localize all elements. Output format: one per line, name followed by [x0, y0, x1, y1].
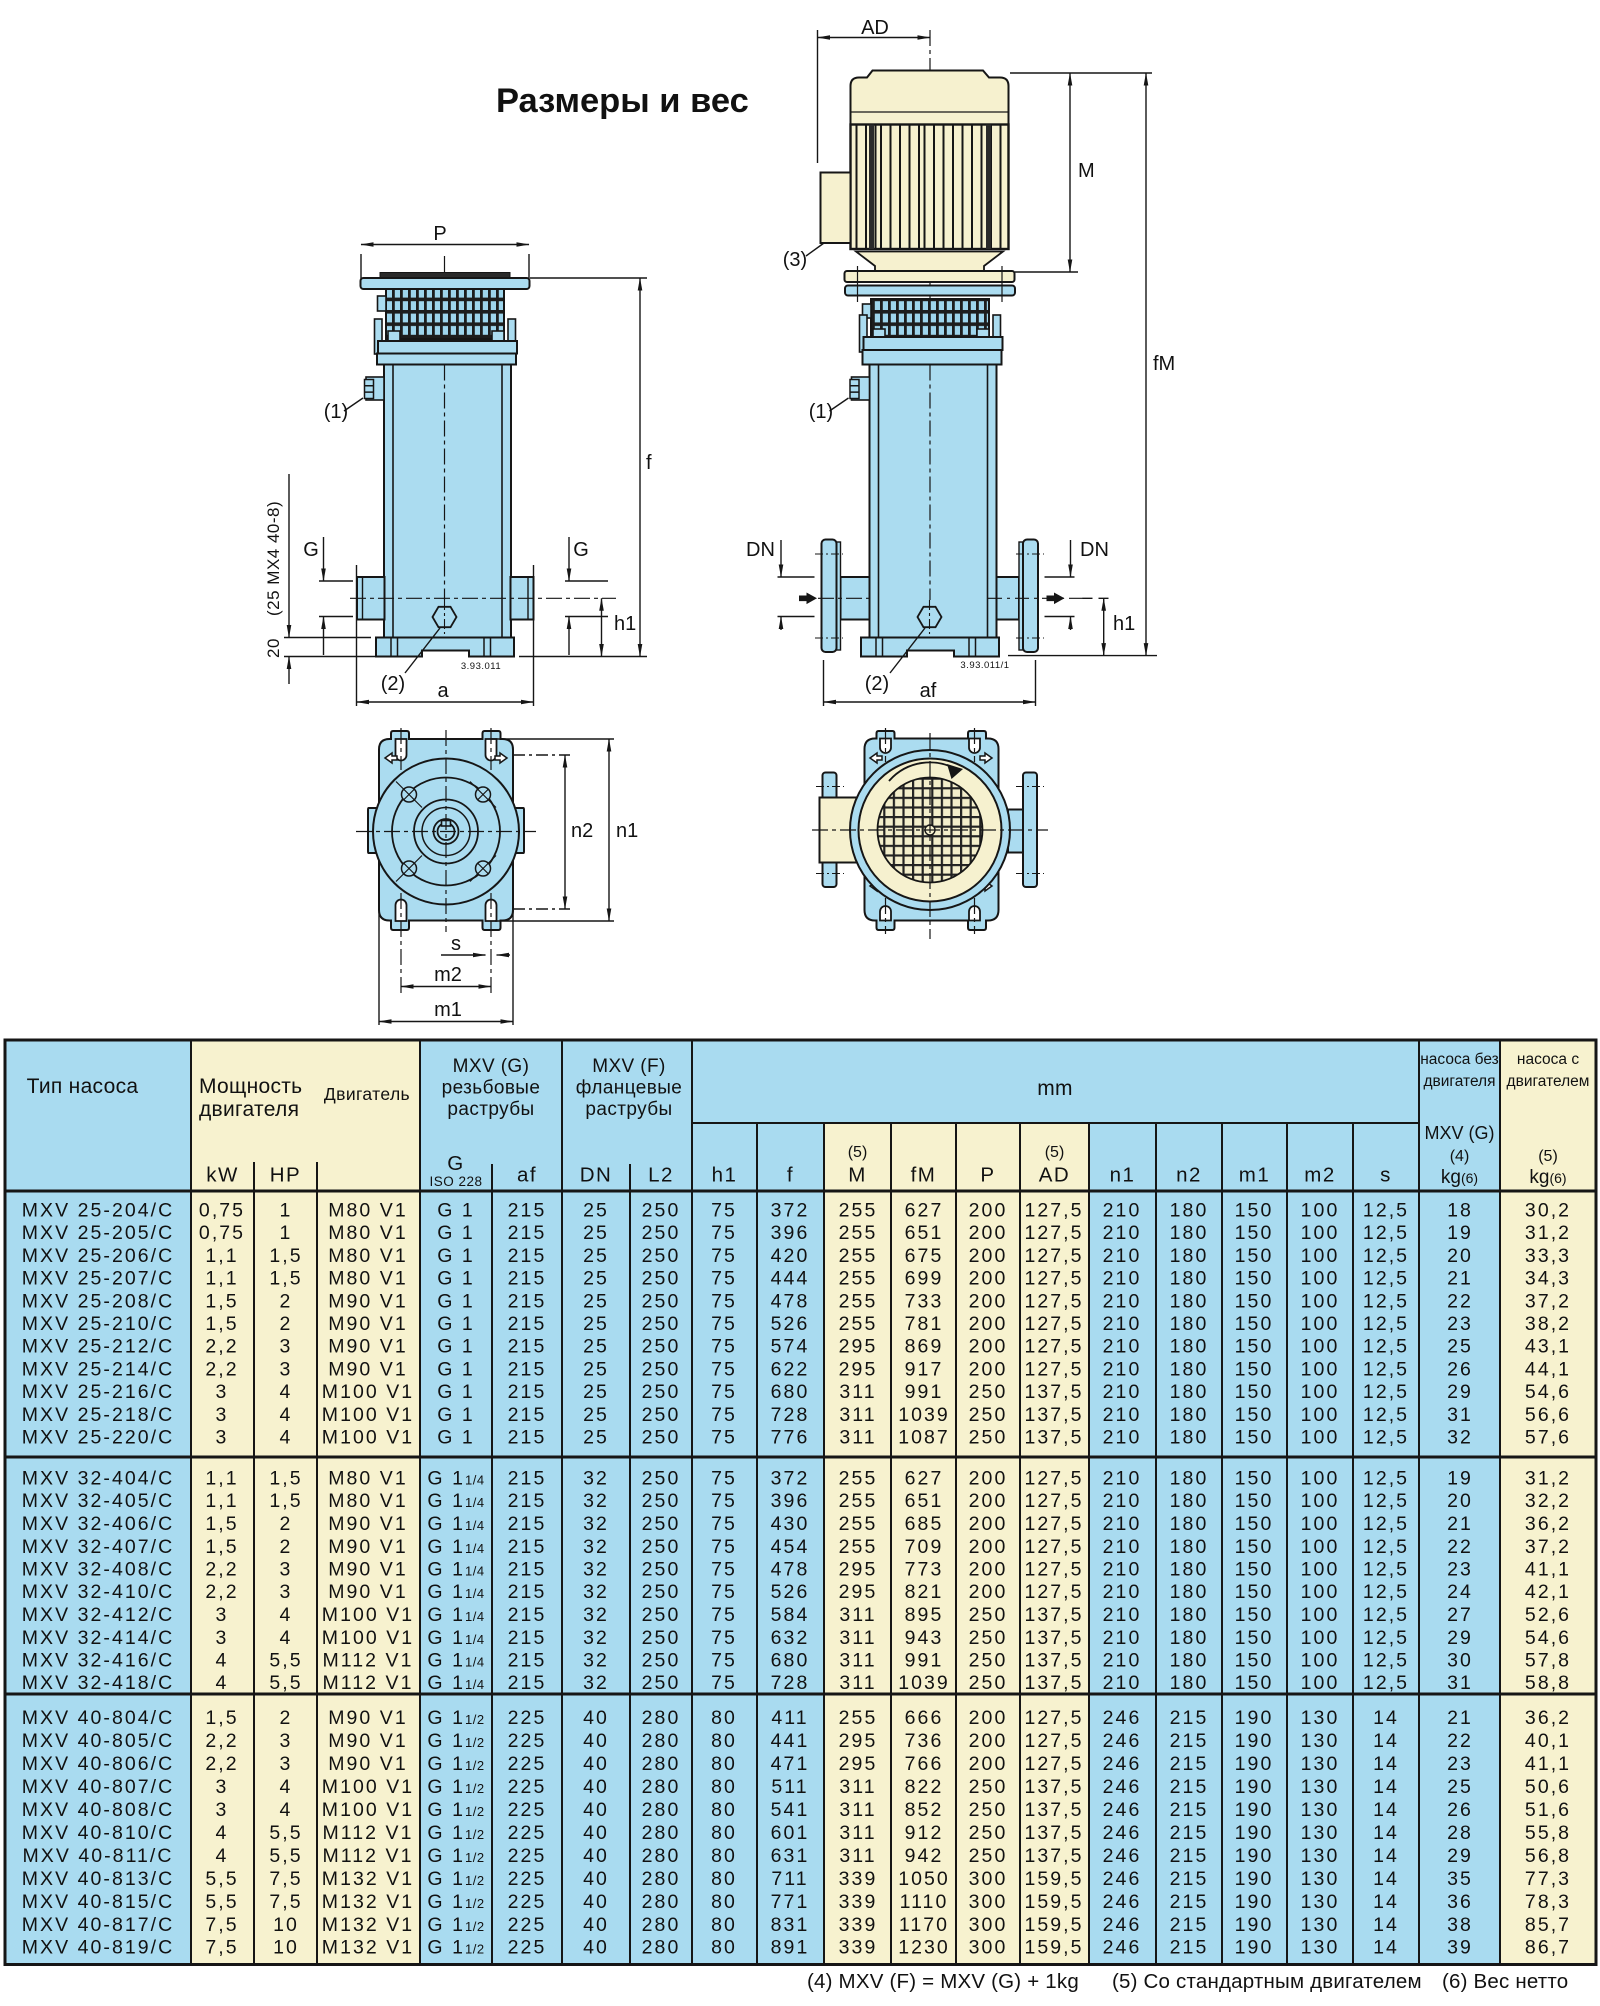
- svg-text:m1: m1: [1239, 1164, 1270, 1187]
- svg-text:фланцевые: фланцевые: [576, 1078, 683, 1099]
- svg-text:mm: mm: [1037, 1077, 1073, 1100]
- svg-text:насоса с: насоса с: [1517, 1051, 1579, 1068]
- svg-text:f: f: [646, 452, 652, 474]
- svg-text:раструбы: раструбы: [447, 1099, 534, 1120]
- svg-text:n2: n2: [571, 820, 593, 842]
- svg-text:(6) Вес нетто: (6) Вес нетто: [1442, 1970, 1568, 1993]
- svg-text:P: P: [980, 1164, 995, 1187]
- svg-text:20: 20: [264, 638, 283, 658]
- svg-text:Тип насоса: Тип насоса: [27, 1075, 139, 1098]
- svg-text:3.93.011: 3.93.011: [461, 661, 501, 672]
- svg-text:(2): (2): [381, 673, 405, 695]
- svg-text:(5): (5): [848, 1144, 868, 1161]
- svg-text:m2: m2: [434, 964, 462, 986]
- svg-text:m2: m2: [1304, 1164, 1335, 1187]
- svg-text:n1: n1: [616, 820, 638, 842]
- svg-text:(4): (4): [1450, 1148, 1470, 1165]
- svg-text:резьбовые: резьбовые: [442, 1078, 541, 1099]
- svg-text:n2: n2: [1176, 1164, 1202, 1187]
- svg-text:kg(6): kg(6): [1441, 1167, 1478, 1188]
- svg-text:(1): (1): [809, 401, 833, 423]
- svg-text:af: af: [920, 680, 937, 702]
- svg-text:fM: fM: [911, 1164, 937, 1187]
- svg-text:m1: m1: [434, 999, 462, 1021]
- svg-text:h1: h1: [1113, 613, 1135, 635]
- svg-text:fM: fM: [1153, 353, 1175, 375]
- svg-text:ISO 228: ISO 228: [429, 1174, 482, 1189]
- svg-text:двигателя: двигателя: [1424, 1073, 1496, 1090]
- svg-text:M: M: [1078, 160, 1095, 182]
- svg-text:f: f: [787, 1164, 794, 1187]
- svg-text:h1: h1: [614, 613, 636, 635]
- svg-text:(4) MXV (F) = MXV (G) + 1kg: (4) MXV (F) = MXV (G) + 1kg: [807, 1970, 1079, 1993]
- svg-text:h1: h1: [712, 1164, 738, 1187]
- svg-text:(5) Со стандартным двигателем: (5) Со стандартным двигателем: [1112, 1970, 1422, 1993]
- svg-text:раструбы: раструбы: [585, 1099, 672, 1120]
- svg-text:Двигатель: Двигатель: [324, 1084, 410, 1104]
- svg-text:Мощность: Мощность: [199, 1075, 302, 1098]
- svg-text:DN: DN: [746, 539, 775, 561]
- svg-text:двигателем: двигателем: [1507, 1073, 1590, 1090]
- svg-text:G: G: [447, 1152, 464, 1175]
- svg-text:G: G: [303, 539, 319, 561]
- svg-text:DN: DN: [1080, 539, 1109, 561]
- svg-text:(5): (5): [1538, 1148, 1558, 1165]
- svg-text:P: P: [433, 223, 446, 245]
- svg-text:(1): (1): [324, 401, 348, 423]
- svg-text:kg(6): kg(6): [1529, 1167, 1566, 1188]
- svg-text:AD: AD: [861, 17, 889, 39]
- svg-text:HP: HP: [270, 1164, 301, 1187]
- svg-text:M: M: [848, 1164, 867, 1187]
- svg-text:насоса без: насоса без: [1420, 1051, 1499, 1068]
- svg-text:L2: L2: [648, 1164, 674, 1187]
- svg-text:(25 MX4 40-8): (25 MX4 40-8): [264, 501, 283, 616]
- svg-text:MXV (G): MXV (G): [453, 1056, 530, 1077]
- svg-text:DN: DN: [580, 1164, 613, 1187]
- svg-text:(2): (2): [865, 673, 889, 695]
- svg-text:MXV (F): MXV (F): [592, 1056, 666, 1077]
- svg-text:a: a: [437, 680, 449, 702]
- svg-text:MXV (G): MXV (G): [1425, 1123, 1495, 1143]
- svg-text:AD: AD: [1039, 1164, 1070, 1187]
- svg-text:af: af: [517, 1164, 537, 1187]
- svg-text:kW: kW: [206, 1164, 239, 1187]
- svg-text:(5): (5): [1045, 1144, 1065, 1161]
- svg-text:(3): (3): [783, 249, 807, 271]
- svg-text:s: s: [1380, 1164, 1392, 1187]
- svg-text:двигателя: двигателя: [199, 1098, 299, 1121]
- svg-text:Размеры и вес: Размеры и вес: [496, 82, 749, 120]
- svg-text:n1: n1: [1110, 1164, 1136, 1187]
- svg-text:3.93.011/1: 3.93.011/1: [960, 660, 1009, 671]
- svg-text:G: G: [573, 539, 589, 561]
- svg-text:s: s: [451, 933, 461, 955]
